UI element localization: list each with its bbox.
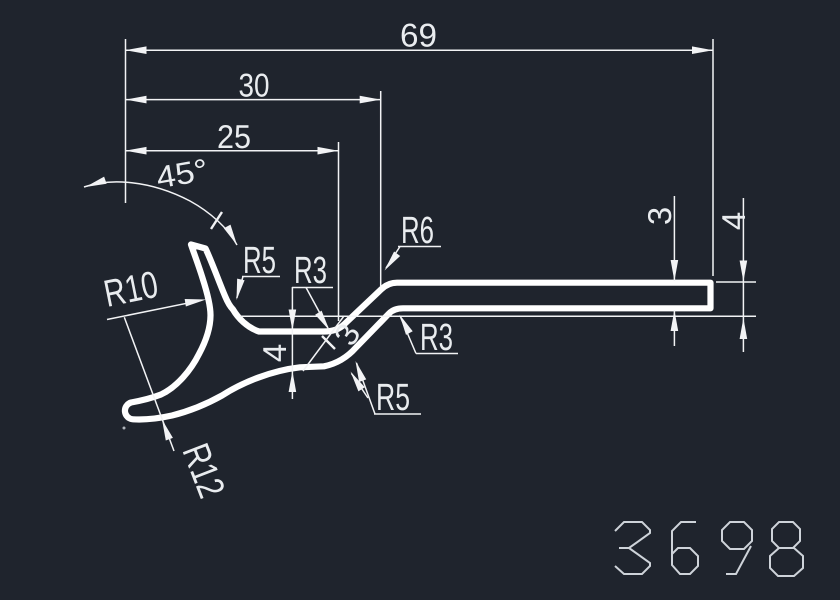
svg-text:R3: R3: [420, 317, 453, 359]
svg-text:R5: R5: [376, 377, 410, 419]
svg-text:4: 4: [256, 344, 293, 362]
svg-text:25: 25: [217, 118, 251, 155]
svg-text:30: 30: [239, 67, 270, 104]
svg-text:R6: R6: [401, 210, 434, 252]
svg-text:69: 69: [400, 17, 437, 54]
svg-text:R5: R5: [243, 240, 276, 282]
svg-text:3: 3: [641, 207, 678, 225]
svg-text:4: 4: [715, 212, 752, 230]
svg-text:R3: R3: [294, 250, 327, 292]
